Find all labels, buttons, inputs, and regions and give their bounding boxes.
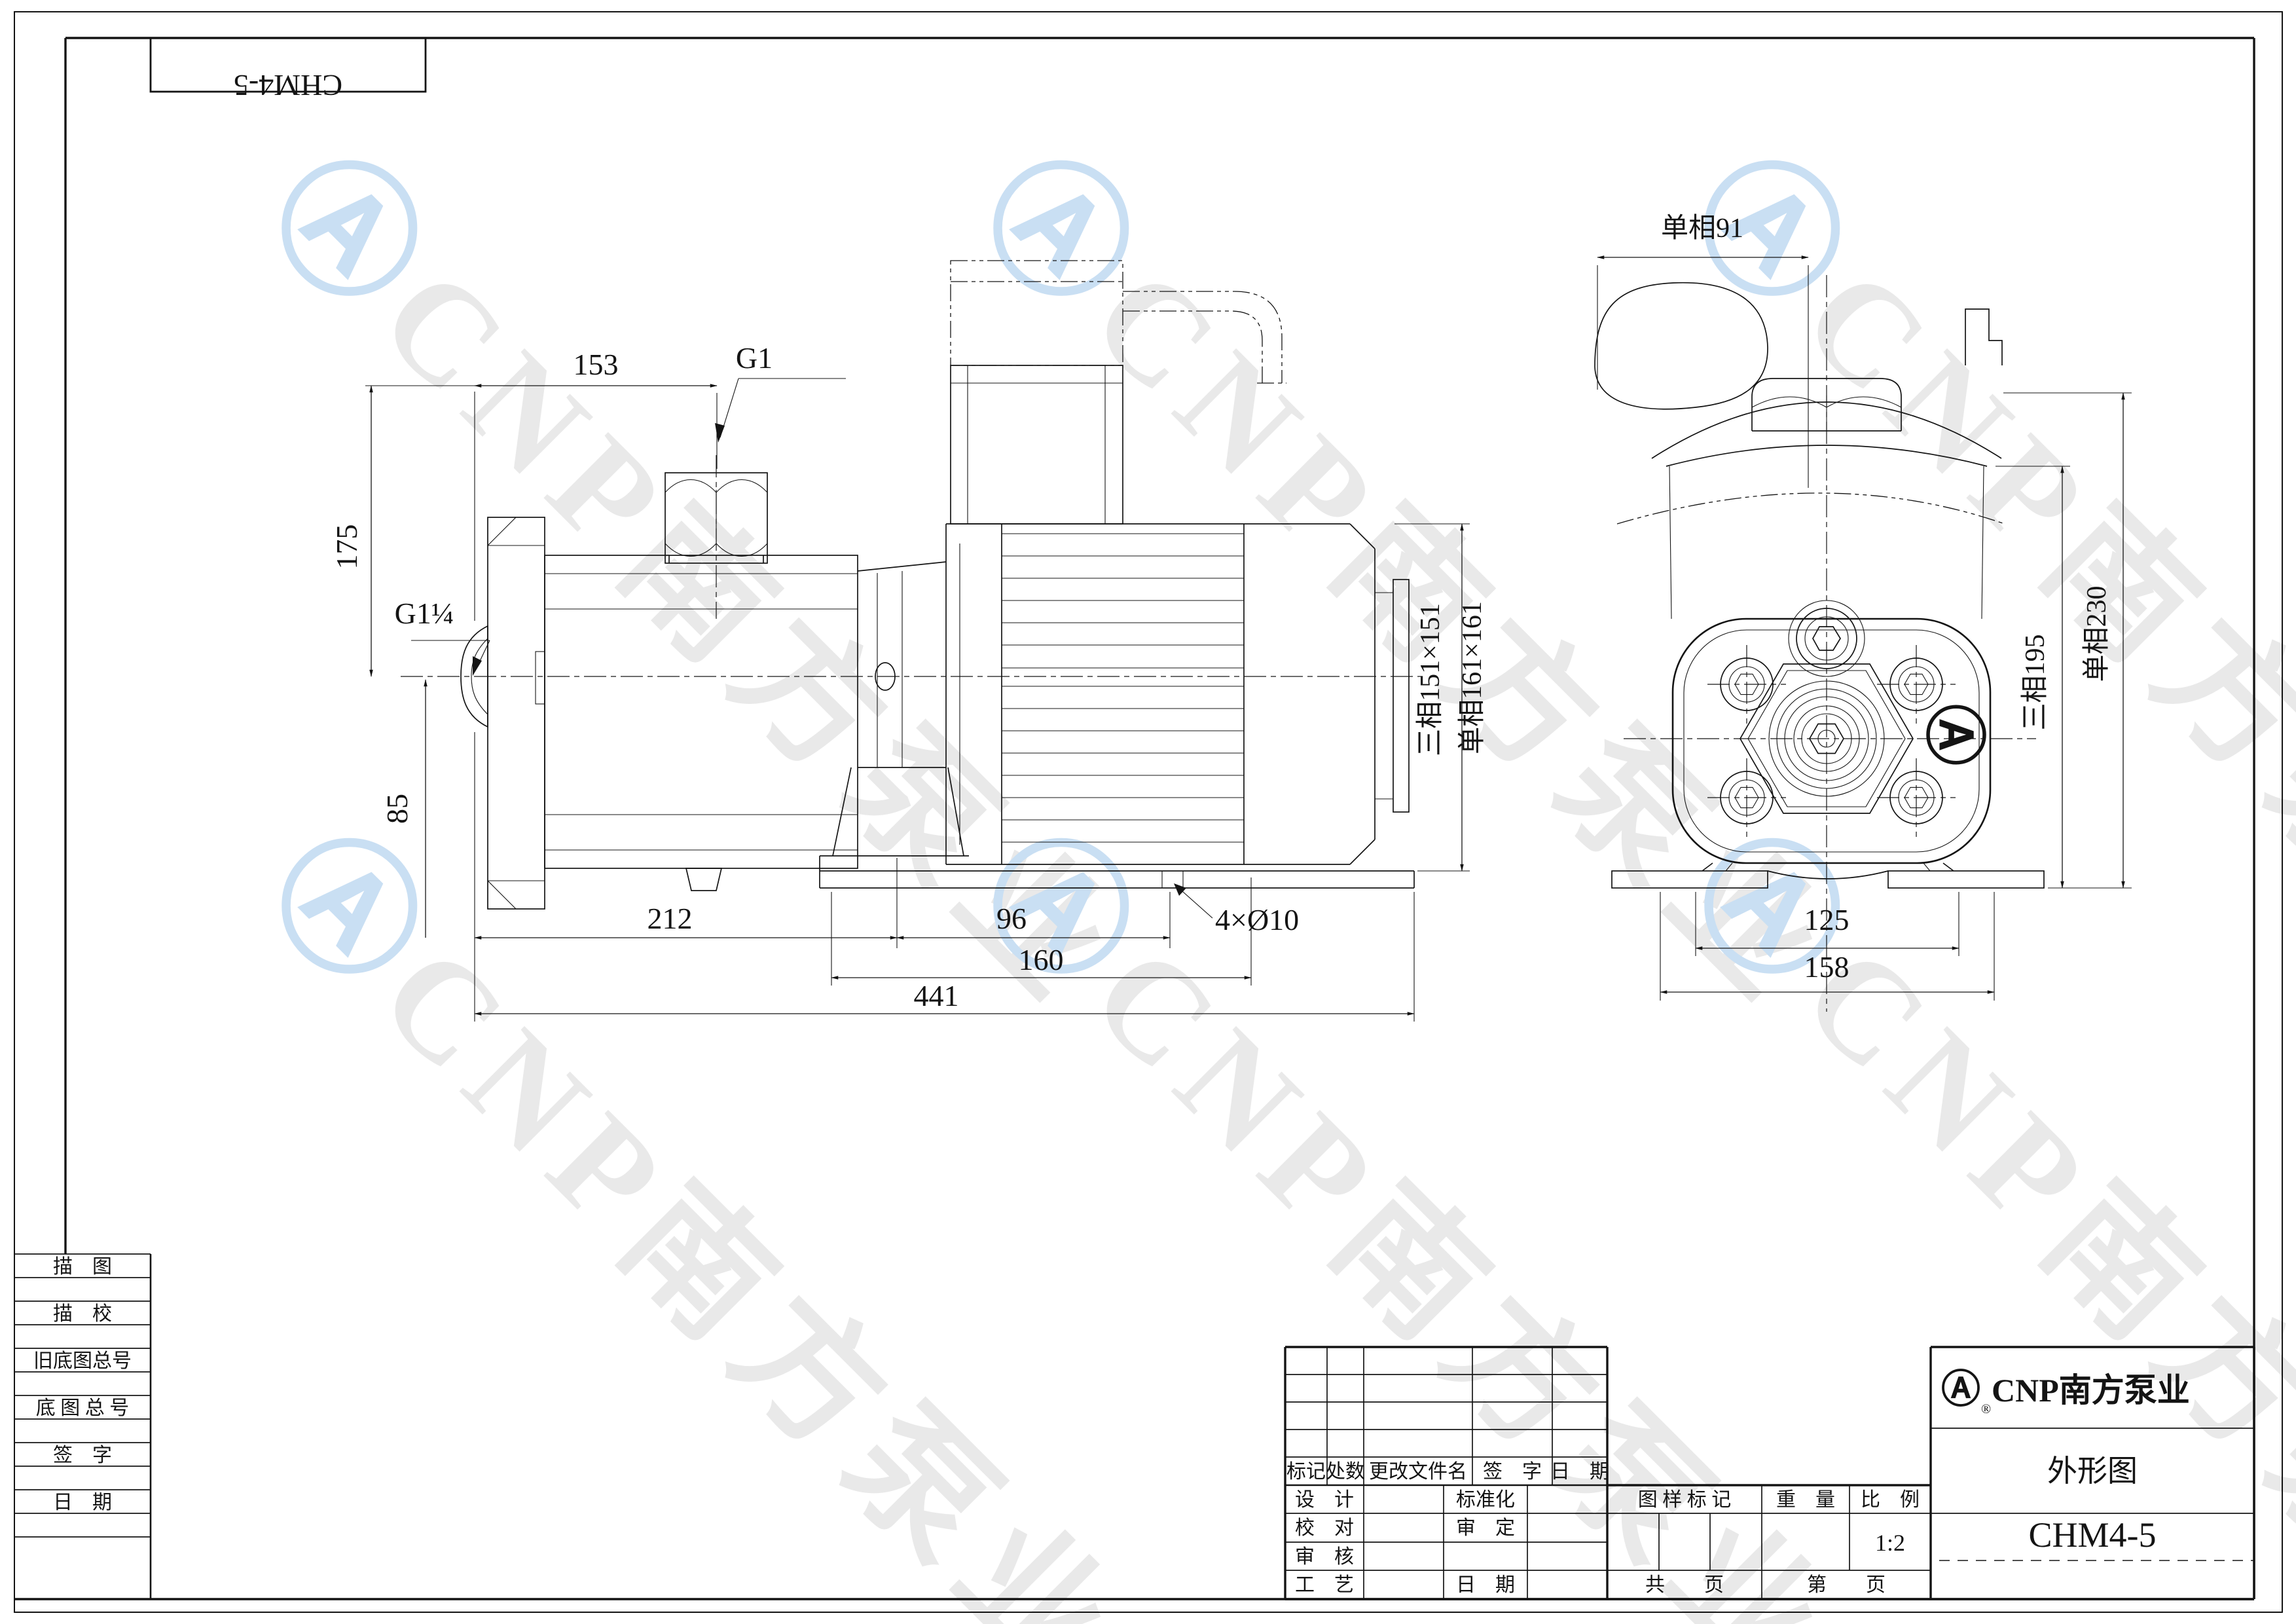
dim-125: 125 [1804,903,1850,936]
brand-reg-mark: ® [1981,1402,1991,1416]
revision-header: 日 期 [1550,1461,1609,1483]
brand-logo-icon: Ⓐ [1941,1368,1980,1411]
dim-212: 212 [647,902,693,935]
revision-header: 标记 [1286,1461,1326,1483]
dim-85: 85 [380,794,414,824]
sign-label: 审 定 [1456,1517,1515,1539]
label-g1: G1 [736,341,773,375]
dim-sq-3ph: 三相151×151 [1415,603,1446,756]
margin-field-label: 描 校 [53,1303,112,1325]
corner-stamp-label: CHM4-5 [234,69,342,102]
sign-label: 工 艺 [1295,1574,1354,1596]
brand-name: CNP南方泵业 [1992,1372,2190,1409]
label-g1-quarter: G1¼ [395,597,454,630]
dim-top-91: 单相91 [1661,213,1743,244]
sign-label: 设 计 [1295,1489,1354,1511]
cnp-logo-glyph: Ⓐ [1919,703,1988,766]
sign-label: 校 对 [1295,1517,1354,1539]
model-label: CHM4-5 [2028,1515,2156,1555]
dim-441: 441 [914,979,959,1012]
sign-label: 审 核 [1295,1546,1354,1568]
sheet-number-label: 第 页 [1807,1574,1886,1596]
dim-holes: 4×Ø10 [1215,903,1299,936]
dim-158: 158 [1804,950,1850,984]
cad-canvas: ⒶCNP南方泵业 ⒶCNP南方泵业 ⒶCNP南方泵业 ⒶCNP南方泵业 ⒶCNP… [0,0,2296,1624]
sign-label: 标准化 [1456,1489,1515,1511]
watermark-layer: ⒶCNP南方泵业 ⒶCNP南方泵业 ⒶCNP南方泵业 ⒶCNP南方泵业 ⒶCNP… [240,127,2296,1624]
drawing-sheet: ⒶCNP南方泵业 ⒶCNP南方泵业 ⒶCNP南方泵业 ⒶCNP南方泵业 ⒶCNP… [0,0,2296,1624]
motor-fins [1002,534,1244,842]
scale-value: 1:2 [1875,1530,1905,1556]
margin-field-label: 日 期 [53,1492,112,1513]
margin-field-label: 旧底图总号 [33,1350,132,1372]
margin-field-label: 底 图 总 号 [36,1397,130,1419]
doc-type-label: 外形图 [2047,1454,2138,1488]
dim-h-230: 单相230 [2082,585,2112,682]
margin-field-label: 签 字 [53,1445,112,1466]
dim-160: 160 [1019,943,1064,976]
margin-field-label: 描 图 [53,1256,112,1278]
revision-header: 处数 [1326,1461,1365,1483]
margin-field-table: 描 图 描 校 旧底图总号 底 图 总 号 签 字 日 期 [14,1254,151,1599]
dim-153: 153 [574,348,619,381]
dim-sq-1ph: 单相161×161 [1457,601,1487,754]
sheets-total-label: 共 页 [1645,1574,1724,1596]
scale-label: 比 例 [1861,1489,1920,1511]
stamp-mark-label: 图 样 标 记 [1638,1489,1732,1511]
revision-header: 签 字 [1483,1461,1542,1483]
dim-96: 96 [996,902,1027,935]
sign-label: 日 期 [1456,1574,1515,1596]
corner-stamp: CHM4-5 [151,38,426,102]
weight-label: 重 量 [1776,1489,1835,1511]
dim-h-195: 三相195 [2020,634,2050,730]
dim-175: 175 [330,525,363,570]
revision-header: 更改文件名 [1369,1461,1467,1483]
